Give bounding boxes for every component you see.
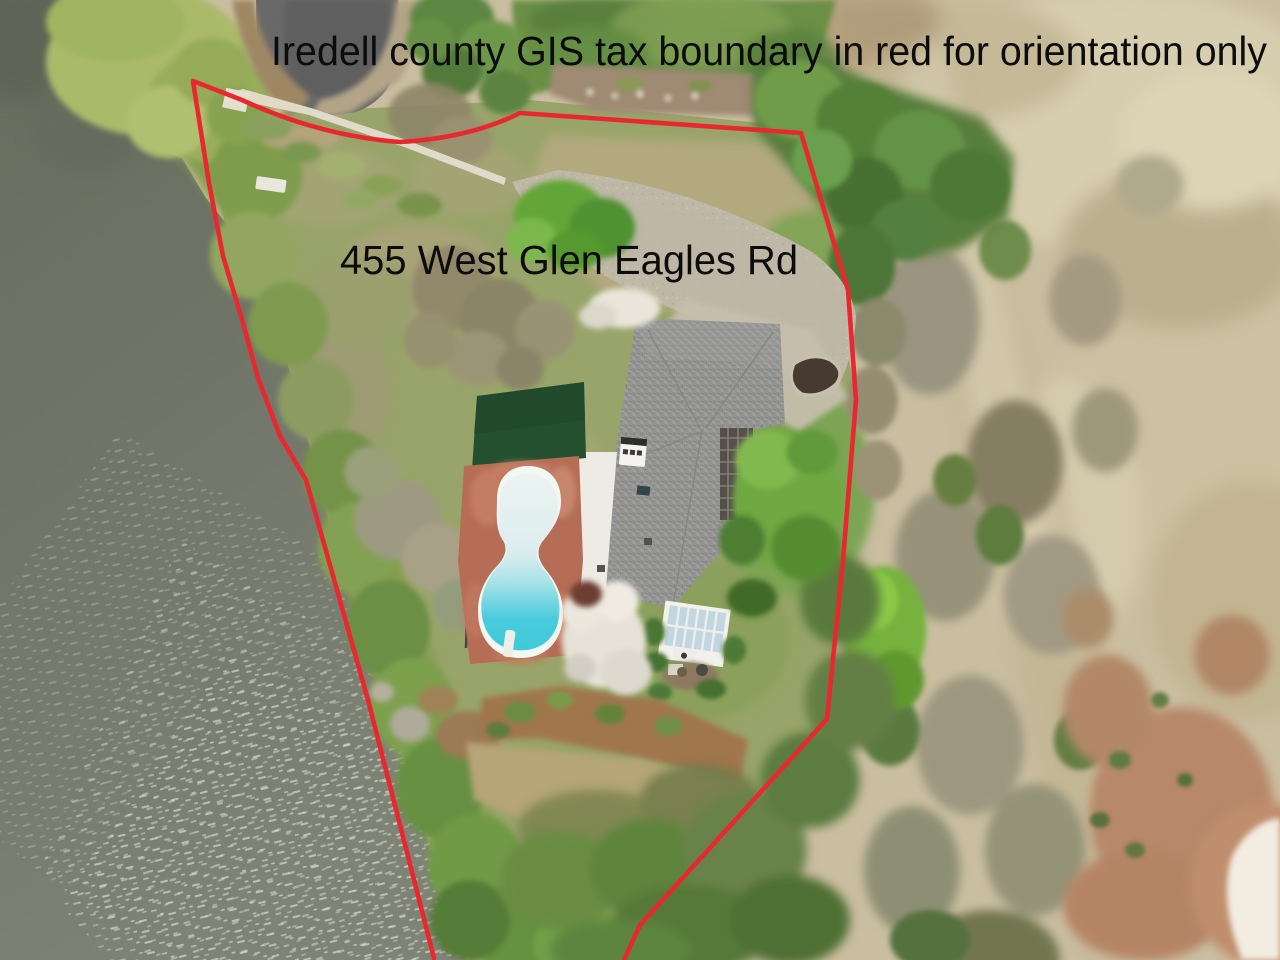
svg-text:455 West Glen Eagles Rd: 455 West Glen Eagles Rd <box>340 237 798 283</box>
svg-text:Iredell county GIS tax boundar: Iredell county GIS tax boundary in red f… <box>271 28 1268 74</box>
